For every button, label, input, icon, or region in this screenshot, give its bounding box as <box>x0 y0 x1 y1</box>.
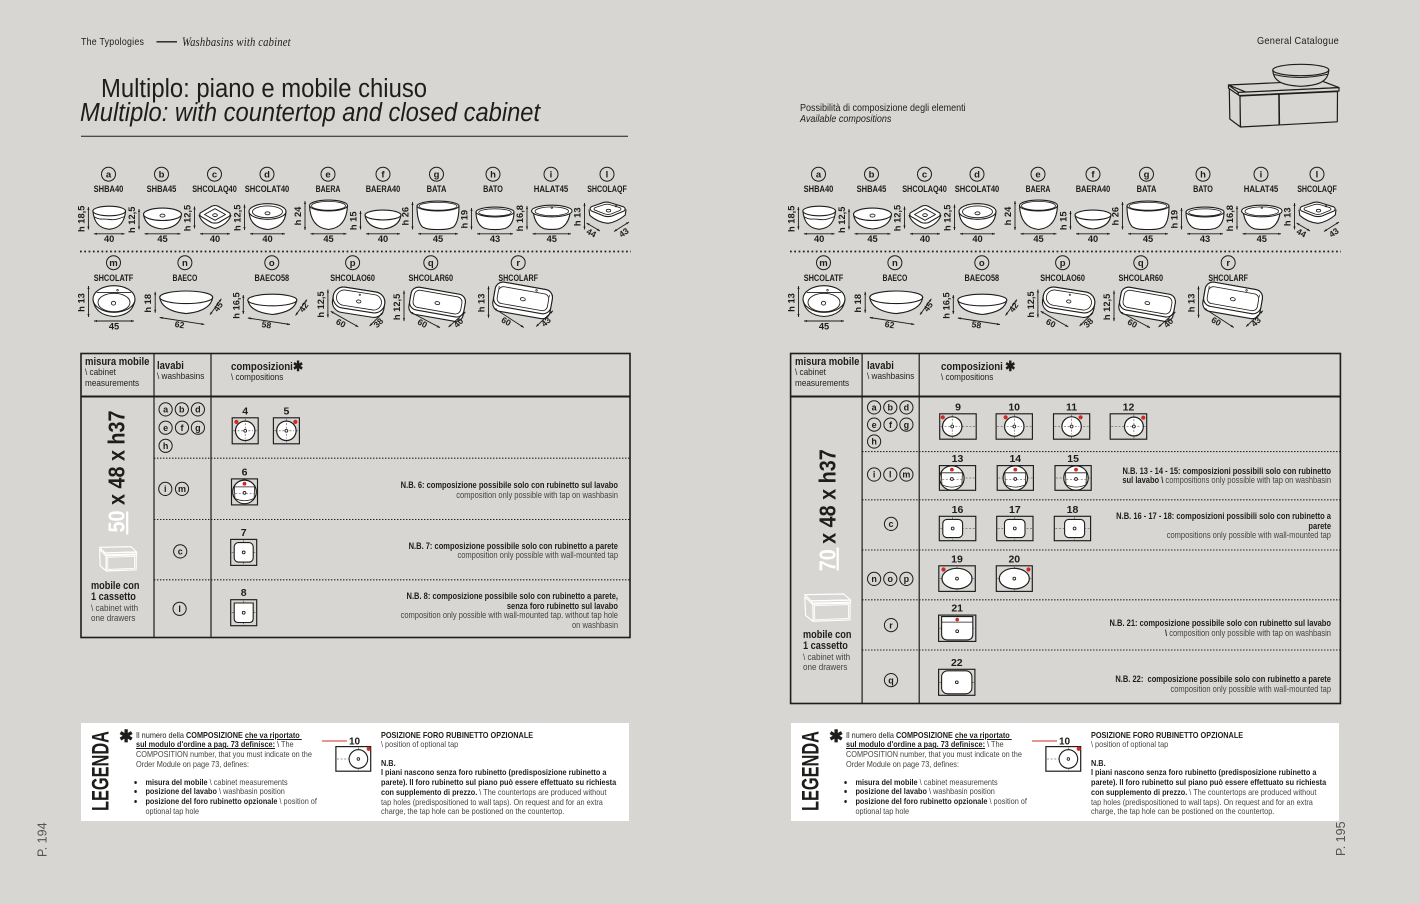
svg-text:g: g <box>1144 170 1150 181</box>
svg-text:BAERA40: BAERA40 <box>366 184 401 194</box>
svg-text:h 12,5: h 12,5 <box>893 205 903 231</box>
svg-text:43: 43 <box>1327 226 1341 240</box>
svg-text:h 13: h 13 <box>787 293 797 312</box>
svg-text:p: p <box>1060 258 1066 269</box>
svg-text:SHCOLAO60: SHCOLAO60 <box>1040 273 1085 283</box>
svg-text:8: 8 <box>241 587 247 599</box>
svg-text:44: 44 <box>1295 226 1308 239</box>
svg-text:9: 9 <box>955 401 961 413</box>
svg-text:h 12,5: h 12,5 <box>316 291 326 317</box>
svg-text:h 13: h 13 <box>477 294 487 313</box>
svg-text:BAERA40: BAERA40 <box>1076 184 1111 194</box>
svg-text:h 16,5: h 16,5 <box>231 292 241 318</box>
svg-text:BAERA: BAERA <box>1026 184 1051 194</box>
svg-text:h 12,5: h 12,5 <box>1102 294 1112 320</box>
svg-text:40: 40 <box>378 234 388 244</box>
svg-text:40: 40 <box>104 234 114 244</box>
svg-text:b: b <box>179 405 185 415</box>
svg-text:h 13: h 13 <box>1283 207 1293 226</box>
svg-text:h 18: h 18 <box>853 294 863 313</box>
svg-text:SHCOLAQ40: SHCOLAQ40 <box>902 184 947 194</box>
svg-text:l: l <box>178 604 181 614</box>
svg-text:i: i <box>873 470 876 480</box>
svg-text:n: n <box>871 574 877 584</box>
svg-text:p: p <box>350 258 356 269</box>
svg-text:h 19: h 19 <box>460 210 470 229</box>
svg-text:SHBA45: SHBA45 <box>147 184 177 194</box>
svg-text:i: i <box>550 170 553 181</box>
svg-text:h 24: h 24 <box>1003 206 1013 225</box>
svg-text:BATA: BATA <box>427 184 447 194</box>
svg-text:12: 12 <box>1123 401 1135 413</box>
svg-text:b: b <box>159 170 165 181</box>
svg-text:SHCOLAQ40: SHCOLAQ40 <box>192 184 237 194</box>
svg-text:a: a <box>816 170 822 181</box>
svg-text:a: a <box>163 405 169 415</box>
svg-text:43: 43 <box>1200 234 1210 244</box>
svg-text:58: 58 <box>971 319 982 330</box>
svg-text:l: l <box>606 170 609 181</box>
svg-text:l: l <box>1316 170 1319 181</box>
svg-text:h 12,5: h 12,5 <box>837 207 847 233</box>
svg-text:45: 45 <box>1143 234 1153 244</box>
svg-text:BAECO: BAECO <box>883 273 908 283</box>
svg-text:40: 40 <box>1088 234 1098 244</box>
svg-text:SHCOLAR60: SHCOLAR60 <box>1119 273 1164 283</box>
svg-text:SHCOLATF: SHCOLATF <box>94 273 134 283</box>
svg-text:45: 45 <box>819 322 829 332</box>
svg-text:45: 45 <box>157 234 167 244</box>
svg-text:a: a <box>106 170 112 181</box>
svg-text:44: 44 <box>585 226 598 239</box>
svg-text:h 12,5: h 12,5 <box>183 205 193 231</box>
svg-text:19: 19 <box>951 553 963 565</box>
svg-text:h 24: h 24 <box>293 206 303 225</box>
svg-text:BAECO58: BAECO58 <box>965 273 1000 283</box>
svg-text:13: 13 <box>952 453 964 465</box>
svg-text:h 12,5: h 12,5 <box>392 294 402 320</box>
svg-text:5: 5 <box>283 405 289 417</box>
svg-text:h 26: h 26 <box>401 207 411 226</box>
svg-text:SHCOLAR60: SHCOLAR60 <box>409 273 454 283</box>
svg-text:a: a <box>872 403 878 413</box>
svg-text:f: f <box>1091 170 1095 181</box>
svg-text:40: 40 <box>210 234 220 244</box>
svg-text:60: 60 <box>1210 315 1223 328</box>
svg-text:h 12,5: h 12,5 <box>127 207 137 233</box>
svg-text:16: 16 <box>952 504 964 516</box>
svg-text:q: q <box>1138 258 1144 269</box>
svg-text:e: e <box>872 420 877 430</box>
svg-text:q: q <box>428 258 434 269</box>
svg-text:40: 40 <box>262 234 272 244</box>
svg-text:22: 22 <box>951 657 963 669</box>
svg-text:BATO: BATO <box>483 184 503 194</box>
svg-text:c: c <box>888 519 893 529</box>
svg-text:e: e <box>1035 170 1040 181</box>
svg-text:45: 45 <box>211 300 225 314</box>
svg-text:d: d <box>264 170 270 181</box>
svg-text:HALAT45: HALAT45 <box>534 184 569 194</box>
svg-text:c: c <box>178 547 183 557</box>
svg-text:43: 43 <box>490 234 500 244</box>
svg-text:SHBA40: SHBA40 <box>94 184 124 194</box>
svg-text:d: d <box>195 405 201 415</box>
svg-text:n: n <box>182 258 188 269</box>
svg-text:h 18: h 18 <box>143 294 153 313</box>
svg-text:d: d <box>974 170 980 181</box>
svg-text:i: i <box>1260 170 1263 181</box>
svg-text:h 16,8: h 16,8 <box>515 205 525 231</box>
svg-text:h 19: h 19 <box>1170 210 1180 229</box>
svg-text:q: q <box>888 675 894 685</box>
svg-text:h: h <box>1200 170 1206 181</box>
svg-text:45: 45 <box>109 322 119 332</box>
svg-text:h 15: h 15 <box>1059 211 1069 230</box>
svg-text:BATO: BATO <box>1193 184 1213 194</box>
svg-text:o: o <box>888 574 894 584</box>
svg-text:d: d <box>904 403 910 413</box>
svg-text:SHCOLAO60: SHCOLAO60 <box>330 273 375 283</box>
svg-text:g: g <box>195 423 201 433</box>
svg-text:m: m <box>819 258 827 269</box>
svg-text:40: 40 <box>972 234 982 244</box>
svg-text:60: 60 <box>334 316 347 329</box>
svg-text:10: 10 <box>349 736 361 747</box>
svg-text:f: f <box>181 423 185 433</box>
svg-text:45: 45 <box>323 234 333 244</box>
svg-text:SHCOLARF: SHCOLARF <box>1208 273 1248 283</box>
svg-text:o: o <box>269 258 275 269</box>
svg-text:60: 60 <box>1044 316 1057 329</box>
svg-text:BAECO58: BAECO58 <box>255 273 290 283</box>
svg-text:11: 11 <box>1066 401 1077 413</box>
svg-text:r: r <box>889 620 893 630</box>
svg-text:45: 45 <box>867 234 877 244</box>
svg-text:60: 60 <box>416 317 429 330</box>
svg-text:SHCOLAT40: SHCOLAT40 <box>245 184 290 194</box>
svg-text:P. 195: P. 195 <box>1334 821 1348 856</box>
svg-text:g: g <box>904 420 910 430</box>
svg-text:15: 15 <box>1067 453 1079 465</box>
svg-text:h 12,5: h 12,5 <box>943 205 953 231</box>
svg-text:40: 40 <box>920 234 930 244</box>
svg-text:h 13: h 13 <box>573 207 583 226</box>
svg-text:50 x 48 x h37: 50 x 48 x h37 <box>104 411 130 533</box>
svg-text:m: m <box>178 484 186 494</box>
svg-text:45: 45 <box>921 300 935 314</box>
svg-text:SHCOLARF: SHCOLARF <box>498 273 538 283</box>
svg-text:45: 45 <box>1033 234 1043 244</box>
svg-text:BAERA: BAERA <box>316 184 341 194</box>
svg-text:o: o <box>979 258 985 269</box>
svg-text:4: 4 <box>242 405 248 417</box>
svg-text:45: 45 <box>547 234 557 244</box>
svg-text:SHCOLATF: SHCOLATF <box>804 273 844 283</box>
svg-text:62: 62 <box>174 319 185 330</box>
svg-text:f: f <box>381 170 385 181</box>
svg-text:m: m <box>109 258 117 269</box>
svg-text:c: c <box>212 170 217 181</box>
svg-text:e: e <box>325 170 330 181</box>
svg-text:h 16,8: h 16,8 <box>1225 205 1235 231</box>
svg-text:40: 40 <box>814 234 824 244</box>
svg-text:g: g <box>434 170 440 181</box>
svg-text:58: 58 <box>261 319 272 330</box>
svg-text:SHCOLAQF: SHCOLAQF <box>587 184 627 194</box>
svg-text:21: 21 <box>951 603 963 615</box>
svg-text:62: 62 <box>884 319 895 330</box>
svg-text:n: n <box>892 258 898 269</box>
svg-text:h: h <box>871 437 877 447</box>
svg-text:HALAT45: HALAT45 <box>1244 184 1279 194</box>
svg-text:f: f <box>889 420 893 430</box>
svg-text:r: r <box>516 258 520 269</box>
svg-text:42: 42 <box>1007 300 1021 314</box>
svg-text:l: l <box>889 470 892 480</box>
svg-text:10: 10 <box>1059 736 1071 747</box>
svg-text:20: 20 <box>1008 553 1020 565</box>
svg-text:r: r <box>1226 258 1230 269</box>
svg-text:SHBA40: SHBA40 <box>804 184 834 194</box>
svg-text:b: b <box>888 403 894 413</box>
svg-text:43: 43 <box>617 226 631 240</box>
svg-text:SHCOLAQF: SHCOLAQF <box>1297 184 1337 194</box>
svg-text:10: 10 <box>1008 401 1020 413</box>
svg-text:P. 194: P. 194 <box>36 822 50 857</box>
svg-text:h: h <box>490 170 496 181</box>
svg-text:SHBA45: SHBA45 <box>857 184 887 194</box>
svg-text:i: i <box>164 484 167 494</box>
svg-text:BATA: BATA <box>1137 184 1157 194</box>
svg-text:h 15: h 15 <box>349 211 359 230</box>
svg-text:b: b <box>869 170 875 181</box>
svg-text:14: 14 <box>1009 453 1021 465</box>
svg-text:h 18,5: h 18,5 <box>786 206 796 232</box>
svg-text:42: 42 <box>297 300 311 314</box>
svg-text:45: 45 <box>433 234 443 244</box>
svg-text:h 26: h 26 <box>1111 207 1121 226</box>
svg-text:LEGENDA: LEGENDA <box>798 731 825 811</box>
svg-text:h 13: h 13 <box>77 293 87 312</box>
svg-text:h 12,5: h 12,5 <box>233 205 243 231</box>
svg-text:m: m <box>902 470 910 480</box>
svg-text:SHCOLAT40: SHCOLAT40 <box>955 184 1000 194</box>
svg-text:60: 60 <box>500 315 513 328</box>
svg-text:h 12,5: h 12,5 <box>1026 291 1036 317</box>
svg-text:h 16,5: h 16,5 <box>941 292 951 318</box>
svg-text:6: 6 <box>242 466 248 478</box>
svg-text:p: p <box>904 574 910 584</box>
svg-text:e: e <box>163 423 168 433</box>
svg-text:h 18,5: h 18,5 <box>76 206 86 232</box>
svg-text:45: 45 <box>1257 234 1267 244</box>
svg-text:c: c <box>922 170 927 181</box>
svg-text:h: h <box>163 441 169 451</box>
svg-text:LEGENDA: LEGENDA <box>88 731 115 811</box>
svg-text:60: 60 <box>1126 317 1139 330</box>
svg-text:h 13: h 13 <box>1187 294 1197 313</box>
svg-text:BAECO: BAECO <box>173 273 198 283</box>
svg-text:7: 7 <box>241 527 247 539</box>
